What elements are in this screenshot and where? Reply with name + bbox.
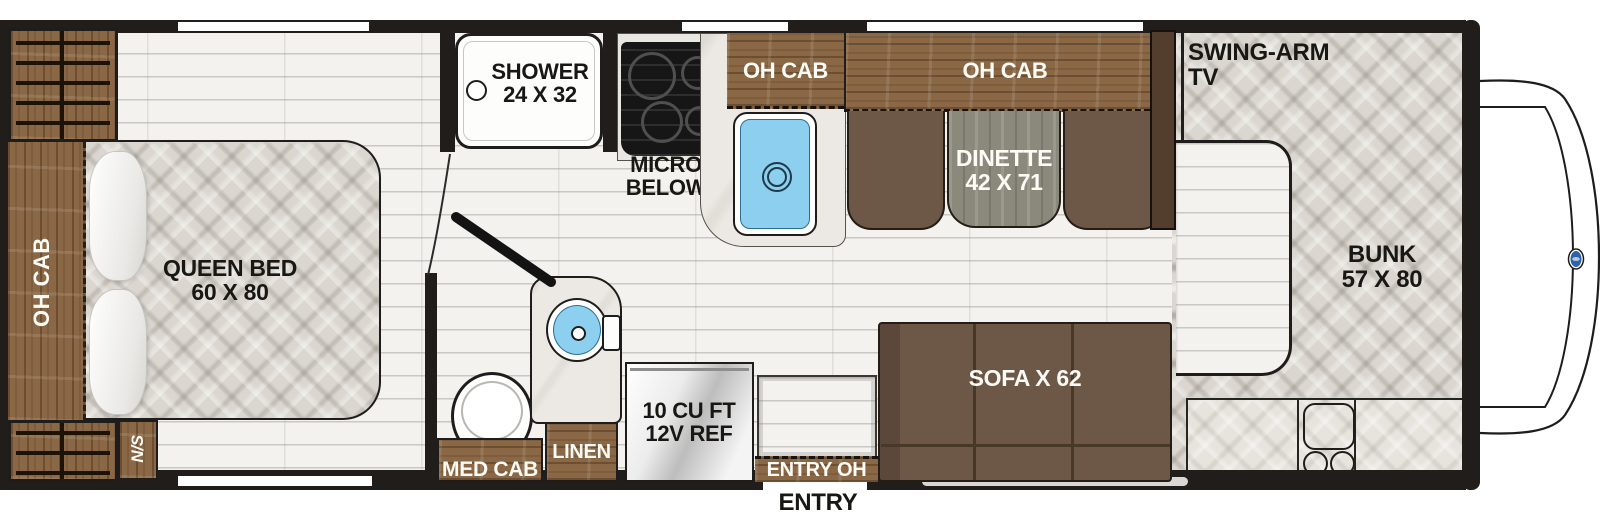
bathroom-door-arc	[428, 154, 450, 275]
vehicle-badge-icon-script	[1572, 257, 1580, 261]
cab-hood-inner	[1480, 107, 1573, 407]
bathroom-door	[456, 217, 551, 282]
overlay-graphics	[0, 0, 1600, 518]
rv-floorplan: QUEEN BED 60 X 80 OH CAB N/S SHOWER 24 X…	[0, 0, 1600, 518]
